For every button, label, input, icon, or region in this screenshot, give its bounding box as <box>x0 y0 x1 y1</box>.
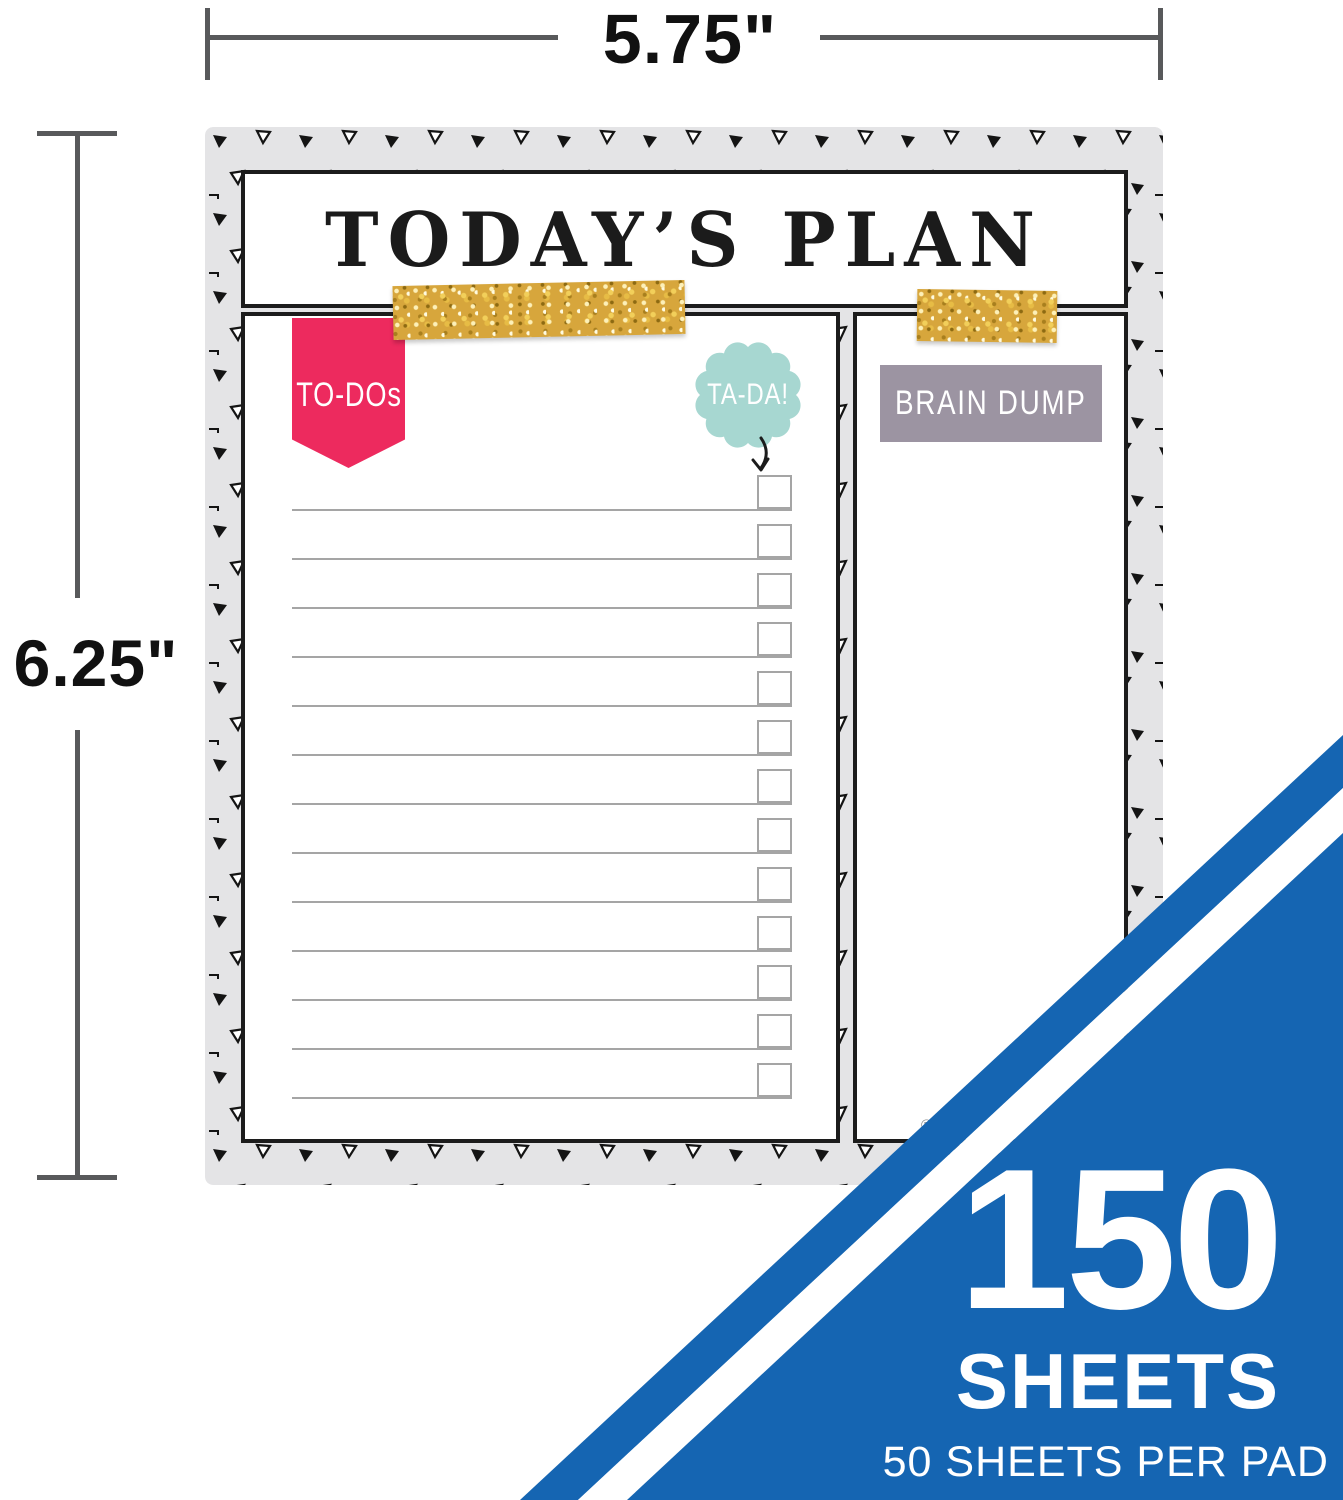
height-dim-cap-top <box>37 131 117 136</box>
todo-checkbox <box>757 622 792 656</box>
height-dim-line-bottom <box>75 730 80 1177</box>
pad-title: TODAY’S PLAN <box>325 195 1044 283</box>
gold-glitter-tape-right <box>917 289 1058 343</box>
todo-line <box>292 867 792 903</box>
todo-checkbox <box>757 671 792 705</box>
todo-line <box>292 1063 792 1099</box>
sheet-count-unit: SHEETS <box>956 1342 1280 1420</box>
width-dim-cap-left <box>205 8 210 80</box>
sheet-count: 150 <box>958 1140 1280 1340</box>
todo-line <box>292 524 792 560</box>
todo-checkbox <box>757 720 792 754</box>
gold-glitter-tape-left <box>392 280 685 340</box>
product-infographic: 5.75" 6.25" TODAY’S PLAN <box>0 0 1343 1500</box>
tada-badge-label: TA-DA! <box>704 340 792 450</box>
todo-checkbox <box>757 1063 792 1097</box>
todo-checkbox <box>757 524 792 558</box>
todo-line <box>292 818 792 854</box>
todo-line <box>292 475 792 511</box>
todo-checkbox <box>757 475 792 509</box>
height-dim-line-top <box>75 136 80 598</box>
todo-checkbox <box>757 1014 792 1048</box>
todo-line <box>292 769 792 805</box>
brain-dump-label: BRAIN DUMP <box>880 365 1102 442</box>
todo-line <box>292 573 792 609</box>
todo-checkbox <box>757 573 792 607</box>
brain-dump-label-text: BRAIN DUMP <box>895 384 1086 423</box>
notepad: TODAY’S PLAN TO-DOs TA-DA! BRAIN DUMP ® <box>205 127 1163 1185</box>
todo-line <box>292 671 792 707</box>
todo-line <box>292 720 792 756</box>
height-dim-label: 6.25" <box>0 630 192 696</box>
tada-badge: TA-DA! <box>693 340 803 450</box>
todo-line <box>292 1014 792 1050</box>
sheets-per-pad-note: 50 SHEETS PER PAD <box>883 1441 1329 1484</box>
hand-drawn-arrow-icon <box>745 435 777 477</box>
width-dim-line-right <box>820 35 1159 40</box>
registered-trademark-mark: ® <box>921 1117 932 1134</box>
todo-line <box>292 622 792 658</box>
todo-checkbox <box>757 867 792 901</box>
todo-line <box>292 965 792 1001</box>
todo-checkbox <box>757 965 792 999</box>
todo-checkbox <box>757 916 792 950</box>
todo-line <box>292 916 792 952</box>
todo-banner: TO-DOs <box>292 318 405 468</box>
width-dim-cap-right <box>1158 8 1163 80</box>
width-dim-line-left <box>207 35 558 40</box>
todo-checkbox <box>757 769 792 803</box>
height-dim-cap-bottom <box>37 1175 117 1180</box>
todo-checkbox <box>757 818 792 852</box>
width-dim-label: 5.75" <box>555 4 825 74</box>
